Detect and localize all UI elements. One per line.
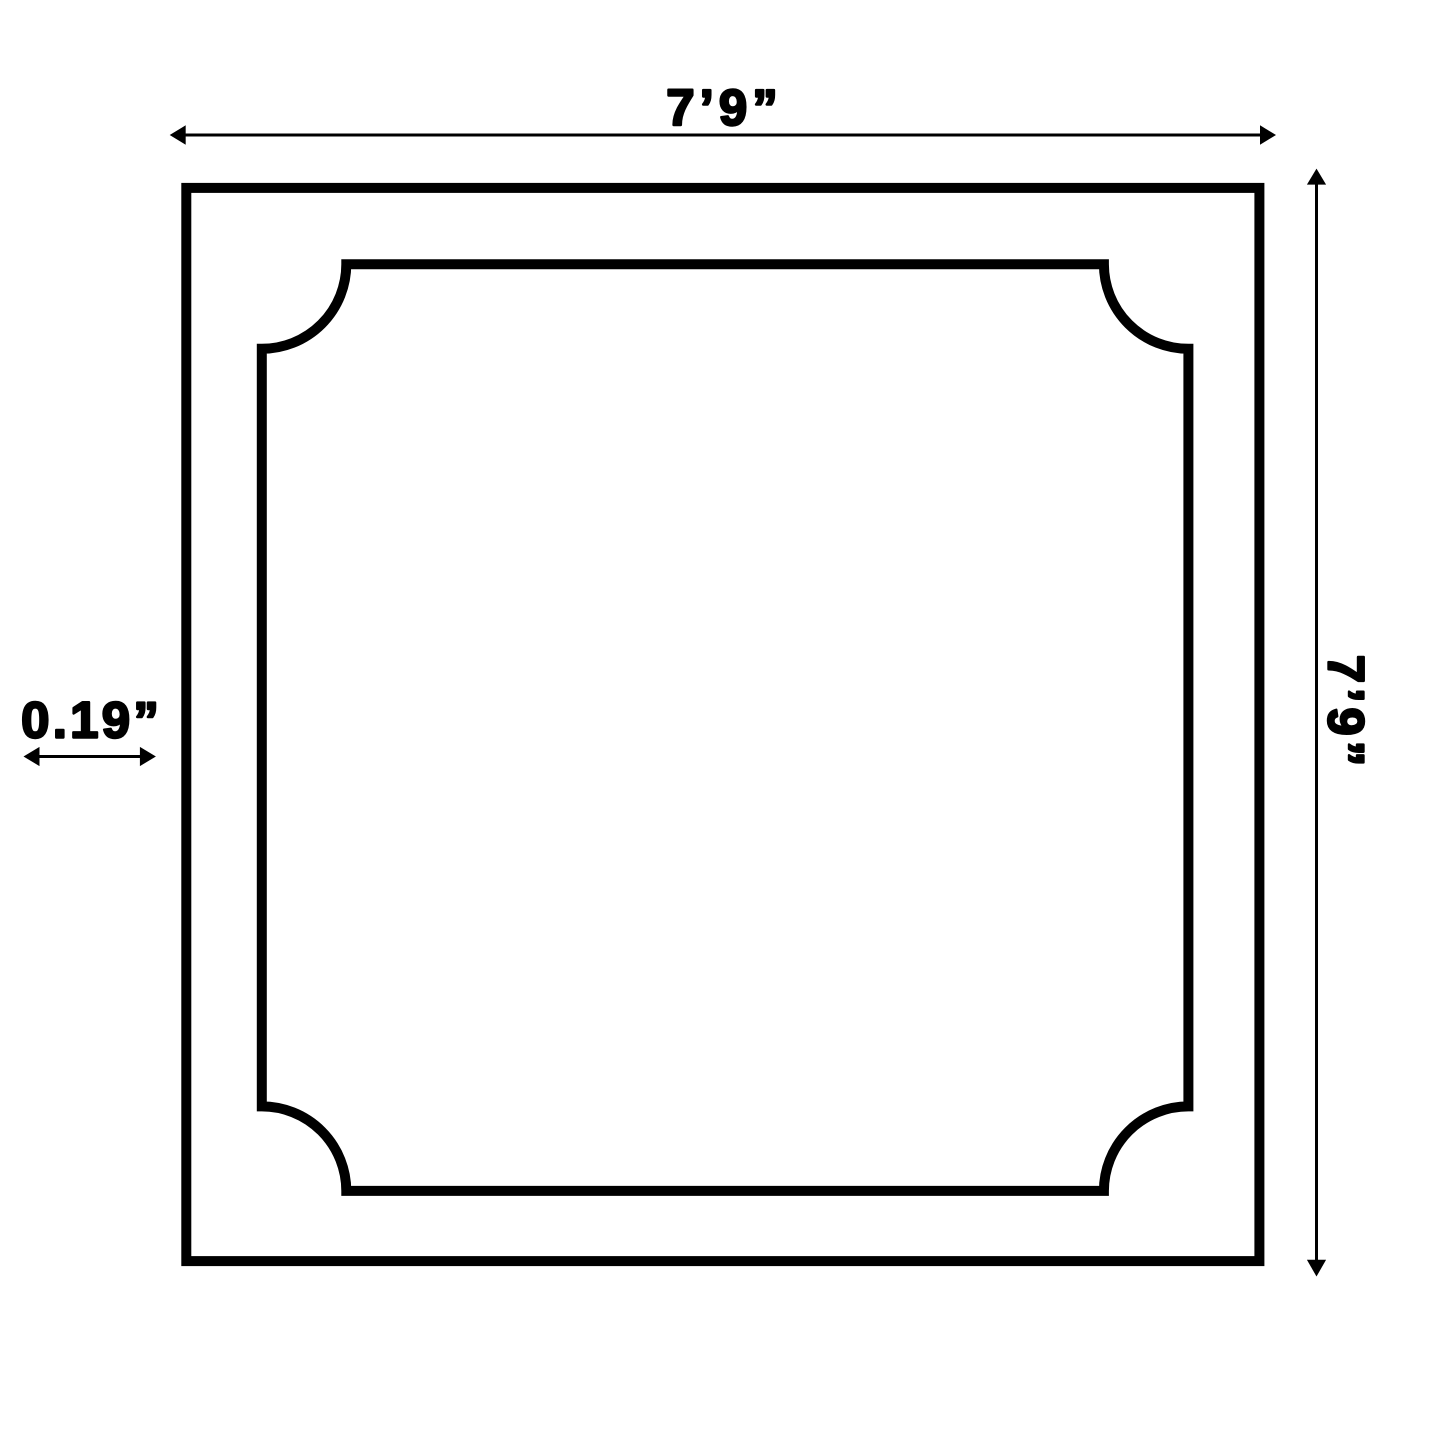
- svg-text:7’9”: 7’9”: [666, 79, 782, 136]
- svg-text:7’9”: 7’9”: [1317, 655, 1374, 771]
- svg-text:0.19”: 0.19”: [21, 692, 162, 749]
